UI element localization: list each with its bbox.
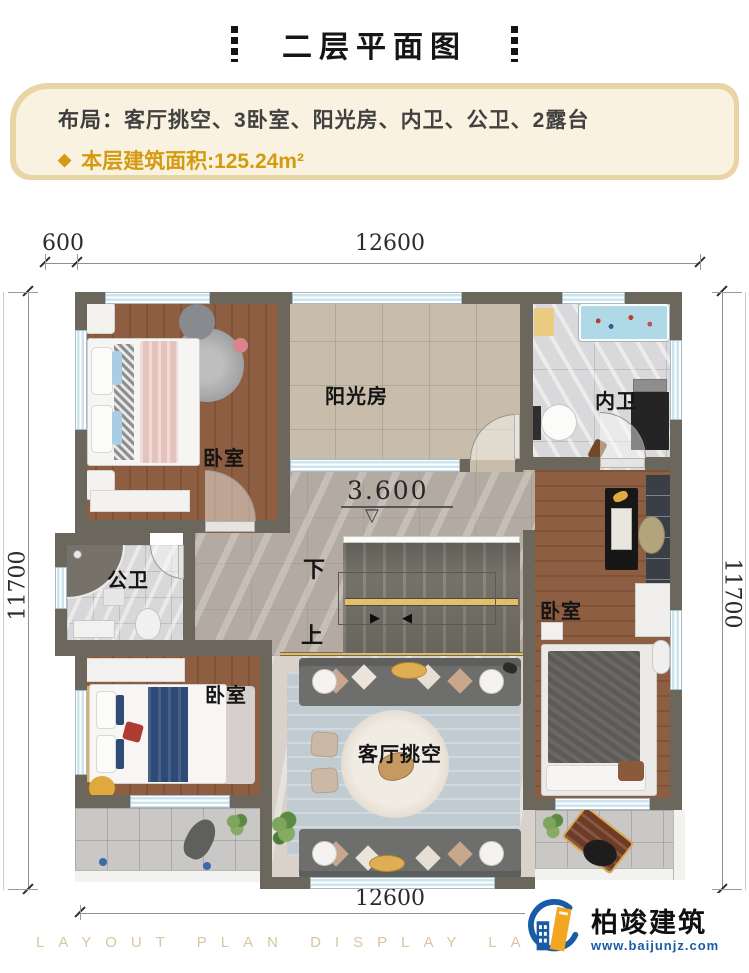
wall: [75, 520, 205, 533]
stair-landing: [343, 536, 520, 543]
pillow-accent: [112, 411, 122, 445]
info-box-outer: 布局：客厅挑空、3卧室、阳光房、内卫、公卫、2露台 ◆ 本层建筑面积:125.2…: [10, 83, 739, 180]
window: [562, 292, 625, 304]
wall-decor: [652, 640, 670, 674]
brand-url: www.baijunjz.com: [591, 939, 719, 953]
toilet: [135, 608, 161, 640]
door-leaf: [205, 521, 255, 532]
wall: [183, 533, 195, 656]
window: [75, 330, 87, 430]
wall: [650, 798, 674, 810]
pillow-accent: [112, 351, 122, 385]
level-line: [341, 506, 453, 508]
cushion: [447, 668, 472, 693]
desk-chair: [638, 516, 665, 554]
room-label-living: 客厅挑空: [358, 738, 442, 767]
dim-line-right: [722, 292, 723, 890]
pouf: [179, 304, 215, 340]
wall: [268, 877, 310, 889]
title-dash-right-icon: [511, 26, 518, 62]
dim-top-main: 12600: [330, 231, 450, 256]
side-table: [312, 669, 337, 694]
brand-logo: 柏竣建筑 www.baijunjz.com: [525, 893, 747, 969]
blanket: [548, 651, 640, 763]
wall: [535, 798, 555, 810]
pouf: [310, 767, 339, 794]
pillow: [91, 405, 113, 453]
side-table: [479, 841, 504, 866]
extension-line-right: [745, 292, 746, 890]
window: [292, 292, 462, 304]
wall: [645, 457, 674, 470]
dim-stub: [700, 254, 701, 270]
pillow: [96, 735, 116, 773]
pillow-accent: [116, 695, 124, 725]
window: [670, 610, 682, 690]
wall: [495, 877, 535, 889]
wall: [278, 292, 290, 533]
wall: [460, 459, 470, 472]
cushion: [351, 664, 376, 689]
wall: [520, 457, 600, 470]
dim-stub: [77, 254, 78, 270]
stair-label-up: 上: [301, 618, 324, 650]
door-leaf: [514, 414, 520, 459]
header: 二层平面图: [0, 22, 749, 66]
toilet: [541, 404, 577, 441]
stair-label-down: 下: [303, 552, 326, 584]
dim-top-small: 600: [42, 231, 80, 256]
plant: [271, 810, 299, 846]
bathtub: [579, 304, 669, 341]
dresser: [85, 658, 185, 682]
wall: [260, 656, 272, 889]
title-dash-left-icon: [231, 26, 238, 62]
dim-right: 11700: [720, 559, 745, 621]
bed: [87, 338, 200, 466]
pillow-red: [122, 721, 144, 743]
side-table: [312, 841, 337, 866]
wall: [523, 530, 535, 810]
dim-stub: [80, 905, 81, 920]
sink: [73, 620, 115, 638]
window: [670, 340, 682, 420]
door-leaf: [600, 458, 645, 468]
window: [130, 795, 230, 808]
dim-stub: [45, 254, 46, 270]
pillow-accent: [618, 761, 644, 781]
info-box: 布局：客厅挑空、3卧室、阳光房、内卫、公卫、2露台 ◆ 本层建筑面积:125.2…: [16, 89, 734, 175]
bed-runner: [148, 687, 188, 782]
dim-stub: [8, 889, 38, 890]
towel: [534, 308, 554, 336]
side-table: [479, 669, 504, 694]
pillow-accent: [116, 739, 124, 769]
layout-row: 布局：客厅挑空、3卧室、阳光房、内卫、公卫、2露台: [58, 104, 734, 134]
dim-stub: [712, 292, 742, 293]
window: [75, 690, 87, 775]
room-label-bath-public: 公卫: [107, 564, 149, 593]
area-row: ◆ 本层建筑面积:125.24m²: [58, 145, 734, 175]
desk-paper: [611, 508, 632, 550]
brand-name: 柏竣建筑: [591, 909, 719, 937]
nightstand: [541, 622, 563, 640]
level-value: 3.600: [347, 476, 429, 505]
brand-text: 柏竣建筑 www.baijunjz.com: [591, 909, 719, 953]
dim-line-left: [28, 292, 29, 890]
window: [310, 877, 495, 889]
door-leaf: [178, 545, 184, 579]
shower-head: [73, 550, 82, 559]
pillow: [91, 347, 113, 395]
wall: [520, 292, 533, 470]
dim-left: 11700: [6, 559, 31, 621]
dim-stub: [712, 889, 742, 890]
cabinet: [635, 583, 672, 637]
room-label-bath-inner: 内卫: [595, 385, 637, 414]
wall: [255, 520, 290, 533]
cushion: [447, 841, 472, 866]
stair-arrow-right-icon: ▶: [370, 611, 380, 624]
flower-dot: [99, 858, 107, 866]
stair-railing-outline: [338, 572, 496, 625]
nightstand: [85, 302, 115, 334]
pillow: [96, 691, 116, 729]
bed: [541, 644, 657, 796]
window: [105, 292, 210, 304]
dim-stub: [8, 292, 38, 293]
room-label-bedroom-bl: 卧室: [205, 679, 247, 708]
room-label-bedroom-tl: 卧室: [203, 442, 245, 471]
window: [555, 798, 650, 810]
window: [55, 567, 67, 609]
sink: [633, 379, 667, 392]
level-triangle-icon: ▽: [365, 506, 379, 524]
wall: [55, 533, 150, 545]
wall: [75, 795, 130, 808]
floor-plan: ▶ ◀: [75, 292, 682, 890]
area-text: 本层建筑面积:125.24m²: [81, 145, 304, 175]
terrace-right-rim-side: [673, 810, 685, 880]
window: [290, 459, 460, 472]
diamond-icon: ◆: [58, 150, 71, 170]
flower-dot: [203, 862, 211, 870]
page-title: 二层平面图: [282, 22, 467, 66]
cushion: [415, 845, 440, 870]
gold-tray: [369, 855, 405, 872]
pouf: [310, 731, 339, 758]
wall: [55, 640, 272, 656]
dresser: [90, 490, 190, 512]
layout-label: 布局：: [58, 109, 124, 132]
plant: [225, 812, 249, 836]
extension-line-left: [3, 292, 4, 890]
building-logo-icon: [525, 898, 587, 965]
dim-line-top: [45, 263, 700, 264]
layout-value: 客厅挑空、3卧室、阳光房、内卫、公卫、2露台: [124, 109, 589, 132]
blanket: [140, 341, 178, 463]
room-label-bedroom-right: 卧室: [540, 595, 582, 624]
terrace-left-rim: [75, 870, 268, 882]
decor-dot: [233, 338, 248, 353]
page: 二层平面图 布局：客厅挑空、3卧室、阳光房、内卫、公卫、2露台 ◆ 本层建筑面积…: [0, 0, 749, 973]
gold-tray: [391, 662, 427, 679]
stair-arrow-left-icon: ◀: [402, 611, 412, 624]
room-label-sunroom: 阳光房: [325, 380, 388, 409]
